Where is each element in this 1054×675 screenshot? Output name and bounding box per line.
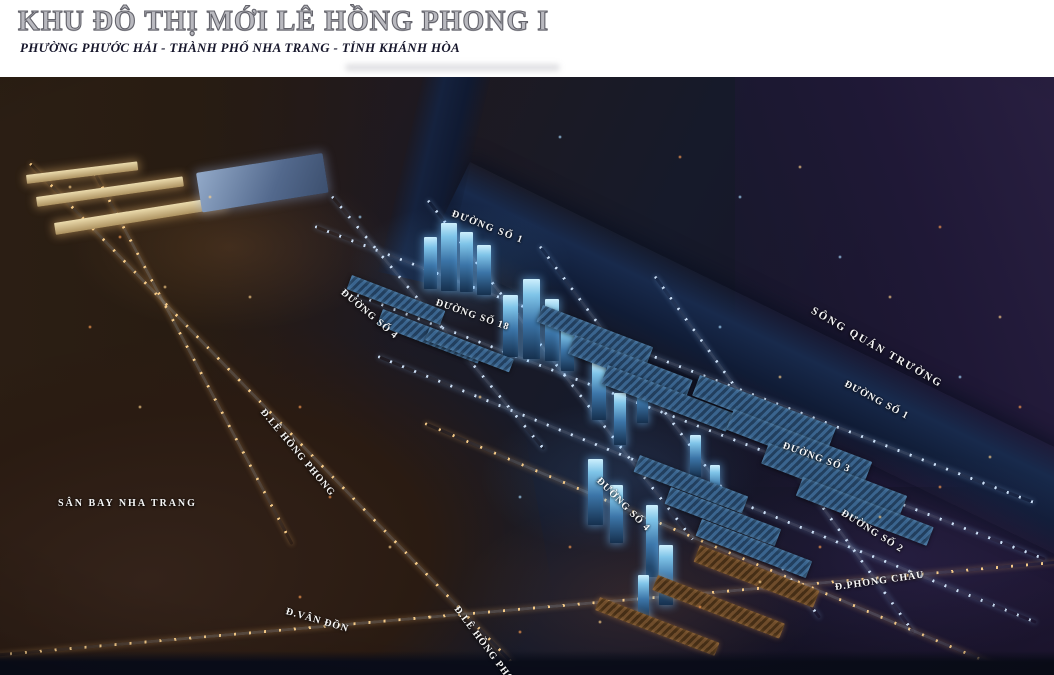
map-label-d-le-hong-phong-left: Đ.LÊ HỒNG PHONG xyxy=(258,407,337,499)
project-title: KHU ĐÔ THỊ MỚI LÊ HỒNG PHONG I xyxy=(18,6,549,38)
map-label-duong-so-4-lower: ĐƯỜNG SỐ 4 xyxy=(594,476,652,534)
slide-header: KHU ĐÔ THỊ MỚI LÊ HỒNG PHONG I PHƯỜNG PH… xyxy=(0,0,1054,77)
map-label-san-bay-nha-trang: SÂN BAY NHA TRANG xyxy=(58,498,197,509)
map-label-duong-so-3: ĐƯỜNG SỐ 3 xyxy=(781,440,852,475)
street-labels-layer: ĐƯỜNG SỐ 1ĐƯỜNG SỐ 4ĐƯỜNG SỐ 18SÔNG QUÁN… xyxy=(0,77,1054,675)
project-location-subtitle: PHƯỜNG PHƯỚC HẢI - THÀNH PHỐ NHA TRANG -… xyxy=(20,40,460,56)
map-label-d-phong-chau: Đ.PHONG CHÂU xyxy=(834,569,925,592)
map-label-duong-so-1-right: ĐƯỜNG SỐ 1 xyxy=(842,379,910,422)
map-label-duong-so-4-upper: ĐƯỜNG SỐ 4 xyxy=(338,287,400,341)
map-label-duong-so-2: ĐƯỜNG SỐ 2 xyxy=(839,508,905,555)
map-label-d-le-hong-phong-bottom: Đ.LÊ HỒNG PHONG xyxy=(452,604,527,675)
masterplan-night-rendering: ĐƯỜNG SỐ 1ĐƯỜNG SỐ 4ĐƯỜNG SỐ 18SÔNG QUÁN… xyxy=(0,77,1054,675)
map-label-d-van-don: Đ.VÂN ĐỒN xyxy=(284,606,350,635)
presentation-slide: KHU ĐÔ THỊ MỚI LÊ HỒNG PHONG I PHƯỜNG PH… xyxy=(0,0,1054,675)
map-label-song-quan-truong: SÔNG QUÁN TRƯỜNG xyxy=(809,305,945,390)
header-artifact xyxy=(345,64,560,71)
map-label-duong-so-18: ĐƯỜNG SỐ 18 xyxy=(434,297,511,333)
map-label-duong-so-1-top: ĐƯỜNG SỐ 1 xyxy=(450,208,525,246)
